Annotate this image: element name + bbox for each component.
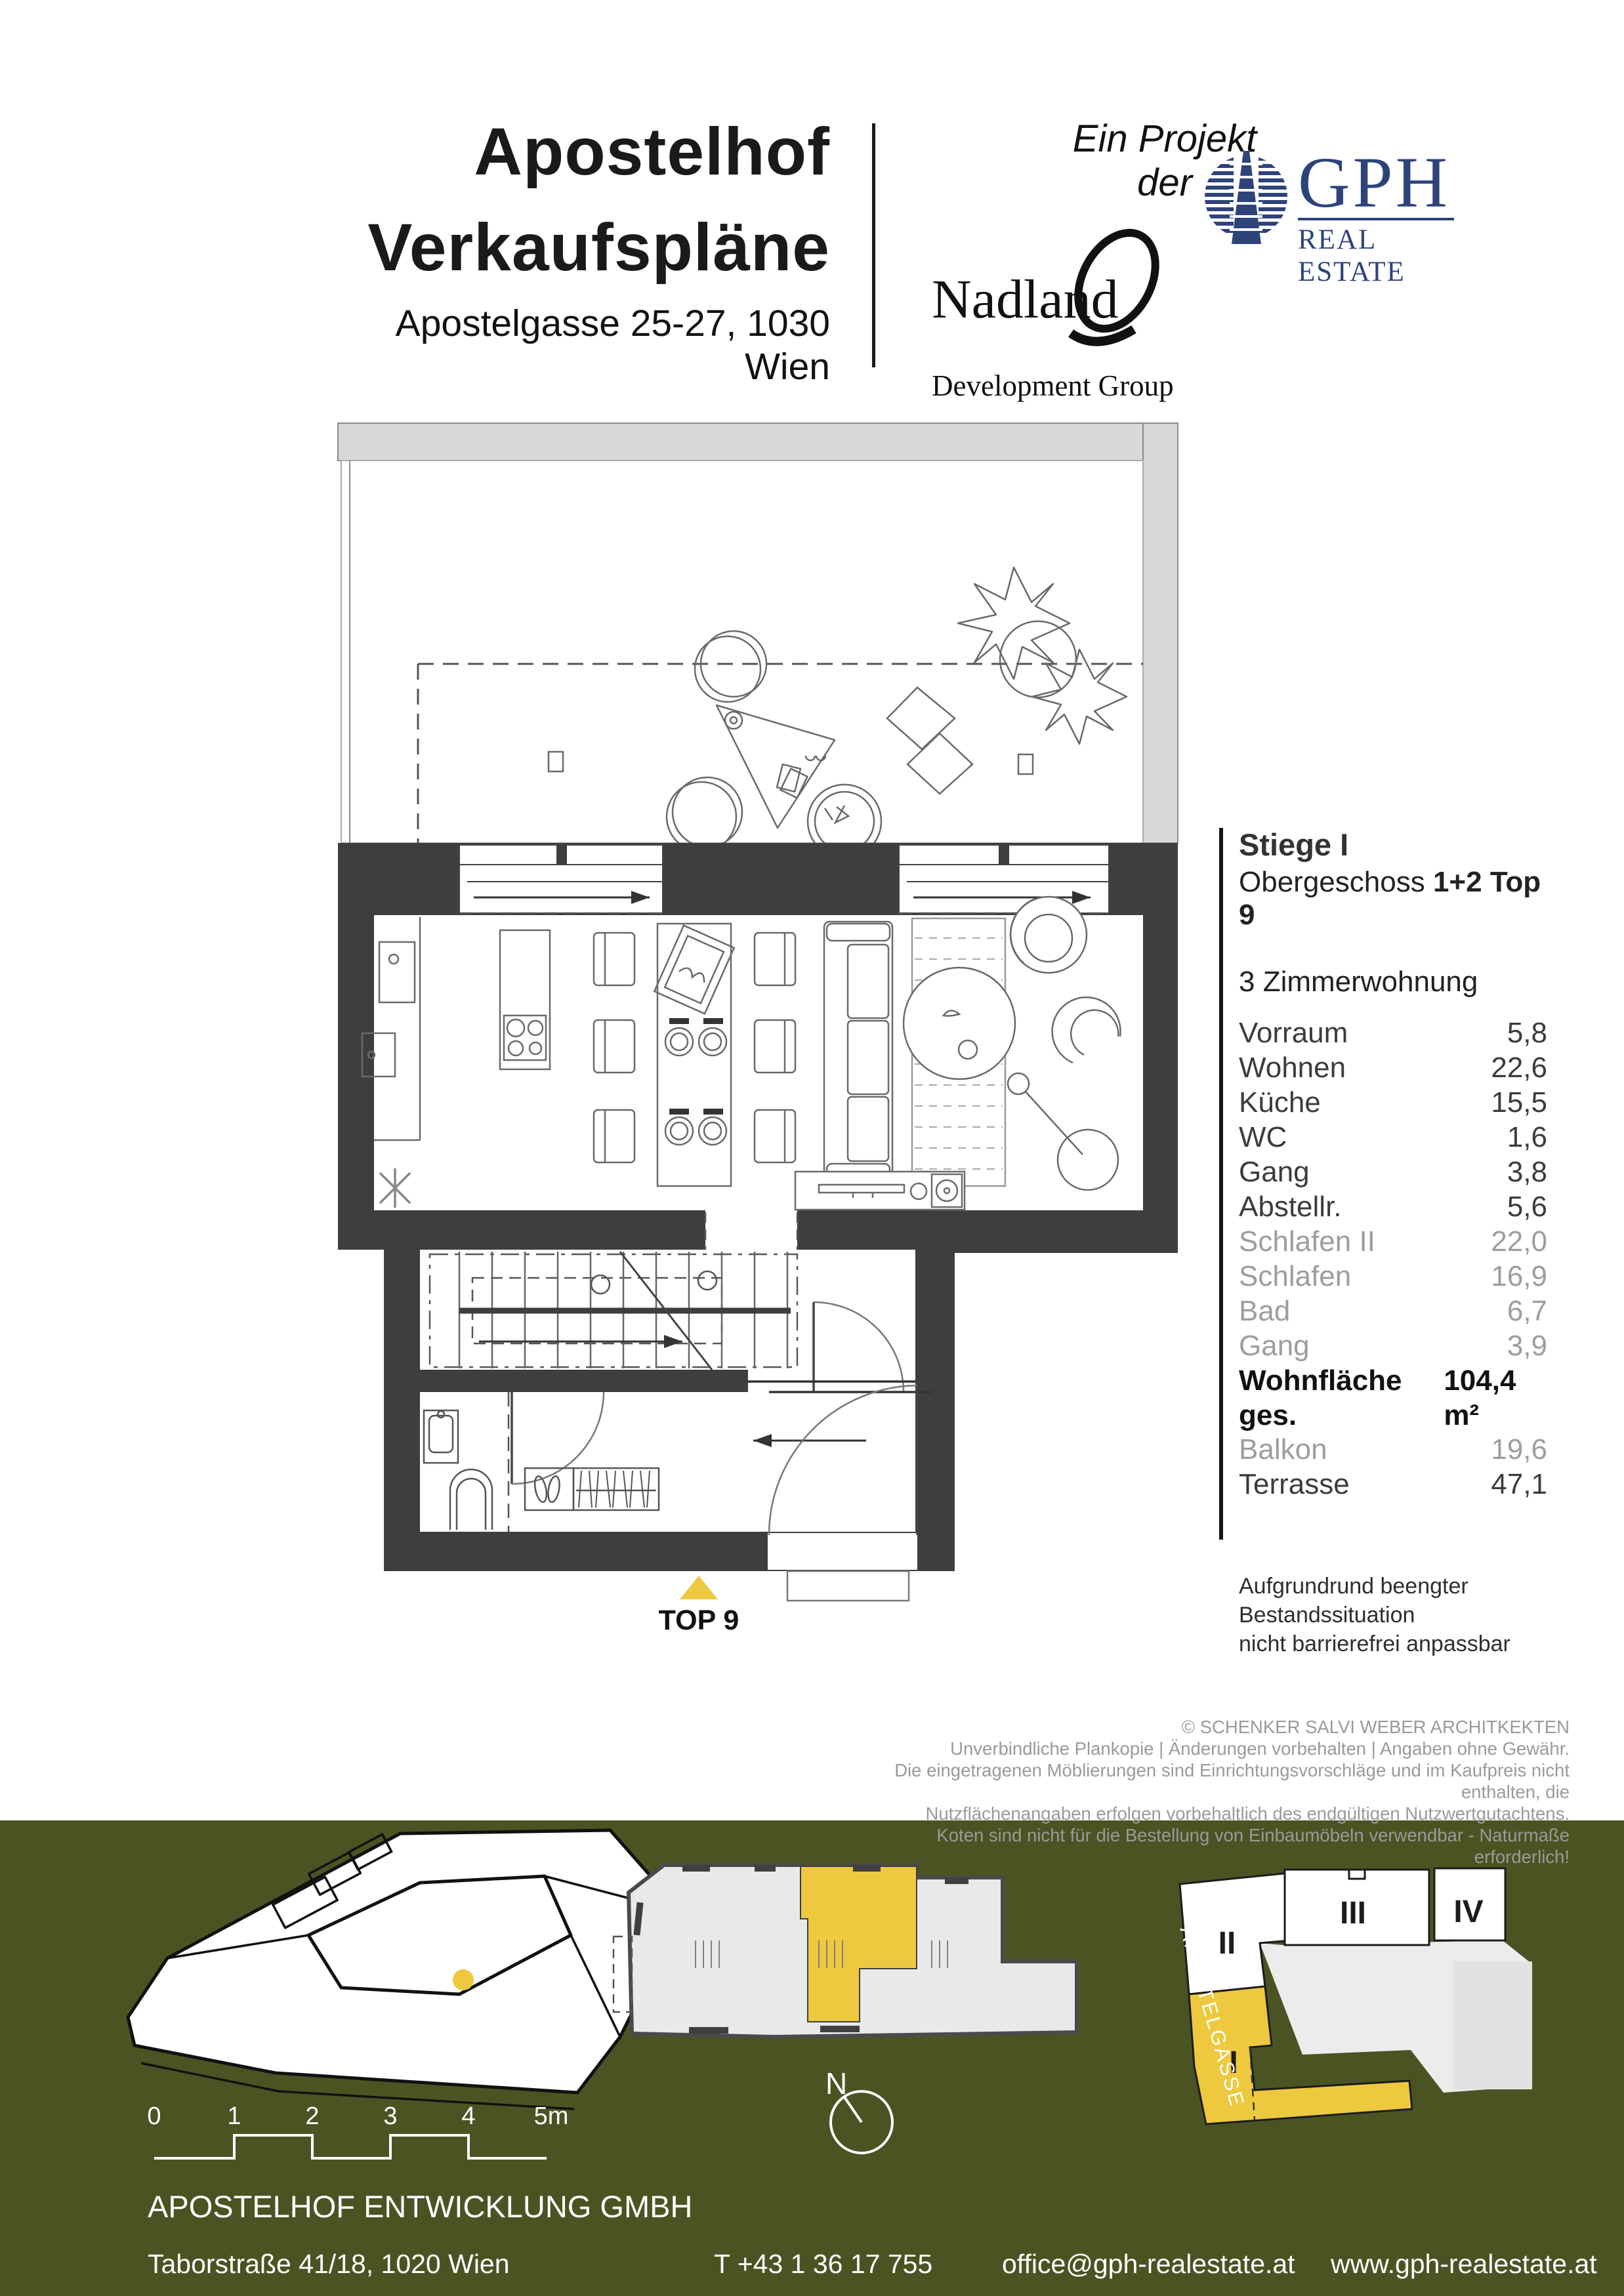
outdoor-list: Balkon19,6 Terrasse47,1 — [1239, 1432, 1547, 1502]
gph-logo-subtext: REAL ESTATE — [1298, 224, 1455, 288]
stiege-label: Stiege I — [1239, 828, 1547, 862]
footer-email-link[interactable]: office@gph-realestate.at — [1002, 2249, 1295, 2280]
room-row: Gang3,9 — [1239, 1328, 1547, 1363]
svg-text:II: II — [1218, 1926, 1236, 1961]
footer-phone: T +43 1 36 17 755 — [714, 2249, 932, 2280]
gph-logo-text: GPH — [1298, 150, 1455, 215]
room-row: Schlafen II22,0 — [1239, 1224, 1547, 1259]
footer-address: Taborstraße 41/18, 1020 Wien — [148, 2249, 510, 2280]
room-list: Vorraum5,8 Wohnen22,6 Küche15,5 WC1,6 Ga… — [1239, 1015, 1547, 1398]
unit-location-dot — [453, 1969, 474, 1990]
svg-text:III: III — [1340, 1896, 1366, 1931]
svg-text:5m: 5m — [534, 2102, 569, 2130]
room-row: Gang3,8 — [1239, 1155, 1547, 1189]
room-row: Abstellr.5,6 — [1239, 1189, 1547, 1224]
room-row: Schlafen16,9 — [1239, 1259, 1547, 1294]
project-note: Ein Projekt der — [1047, 117, 1283, 205]
accessibility-note: Aufgrundrund beengter Bestandssituation … — [1239, 1572, 1624, 1658]
terrace — [338, 423, 1178, 858]
apartment-type: 3 Zimmerwohnung — [1239, 966, 1547, 998]
svg-text:N: N — [825, 2066, 847, 2101]
footer-website-link[interactable]: www.gph-realestate.at — [1331, 2249, 1597, 2280]
room-row: Vorraum5,8 — [1239, 1015, 1547, 1050]
svg-text:IV: IV — [1453, 1895, 1483, 1929]
svg-text:4: 4 — [461, 2102, 475, 2130]
room-row: Terrasse47,1 — [1239, 1467, 1547, 1502]
room-row: Balkon19,6 — [1239, 1432, 1547, 1467]
svg-text:0: 0 — [147, 2102, 161, 2130]
nadland-logo-subtext: Development Group — [932, 369, 1174, 403]
sliding-window — [899, 845, 1109, 913]
room-row: WC1,6 — [1239, 1120, 1547, 1155]
footer-company: APOSTELHOF ENTWICKLUNG GMBH — [148, 2188, 692, 2224]
unit-marker-triangle — [680, 1576, 718, 1599]
nadland-logo-text: Nadland — [932, 268, 1119, 331]
svg-text:2: 2 — [305, 2102, 319, 2130]
gph-logo: GPH REAL ESTATE — [1298, 150, 1455, 288]
unit-table-rule — [1219, 828, 1223, 1540]
document-title-block: Apostelhof Verkaufspläne Apostelgasse 25… — [341, 104, 830, 388]
page-subtitle: Verkaufspläne — [341, 199, 830, 295]
floor-number: 1+2 — [1433, 866, 1482, 898]
unit-info-table: Stiege I Obergeschoss 1+2 Top 9 3 Zimmer… — [1239, 828, 1547, 1502]
header-divider — [872, 123, 875, 367]
page-title: Apostelhof — [341, 104, 830, 199]
entry-level — [384, 1250, 955, 1601]
svg-text:3: 3 — [383, 2102, 397, 2130]
svg-text:1: 1 — [227, 2102, 241, 2130]
room-row: Küche15,5 — [1239, 1085, 1547, 1120]
floor-label: Obergeschoss 1+2 Top 9 — [1239, 866, 1547, 932]
project-address: Apostelgasse 25-27, 1030 Wien — [341, 302, 830, 388]
floor-prefix: Obergeschoss — [1239, 866, 1425, 898]
total-area-row: Wohnfläche ges.104,4 m² — [1239, 1363, 1547, 1398]
room-row: Wohnen22,6 — [1239, 1050, 1547, 1085]
verkaufsplan-page: { "colors":{"accent_yellow":"#eec93f","g… — [0, 0, 1624, 2296]
room-row: Bad6,7 — [1239, 1294, 1547, 1328]
architect-credit: © SCHENKER SALVI WEBER ARCHITKEKTEN — [848, 1716, 1570, 1738]
sliding-window — [459, 845, 663, 913]
unit-label: TOP 9 — [646, 1605, 751, 1637]
disclaimer: © SCHENKER SALVI WEBER ARCHITKEKTEN Unve… — [848, 1716, 1570, 1868]
